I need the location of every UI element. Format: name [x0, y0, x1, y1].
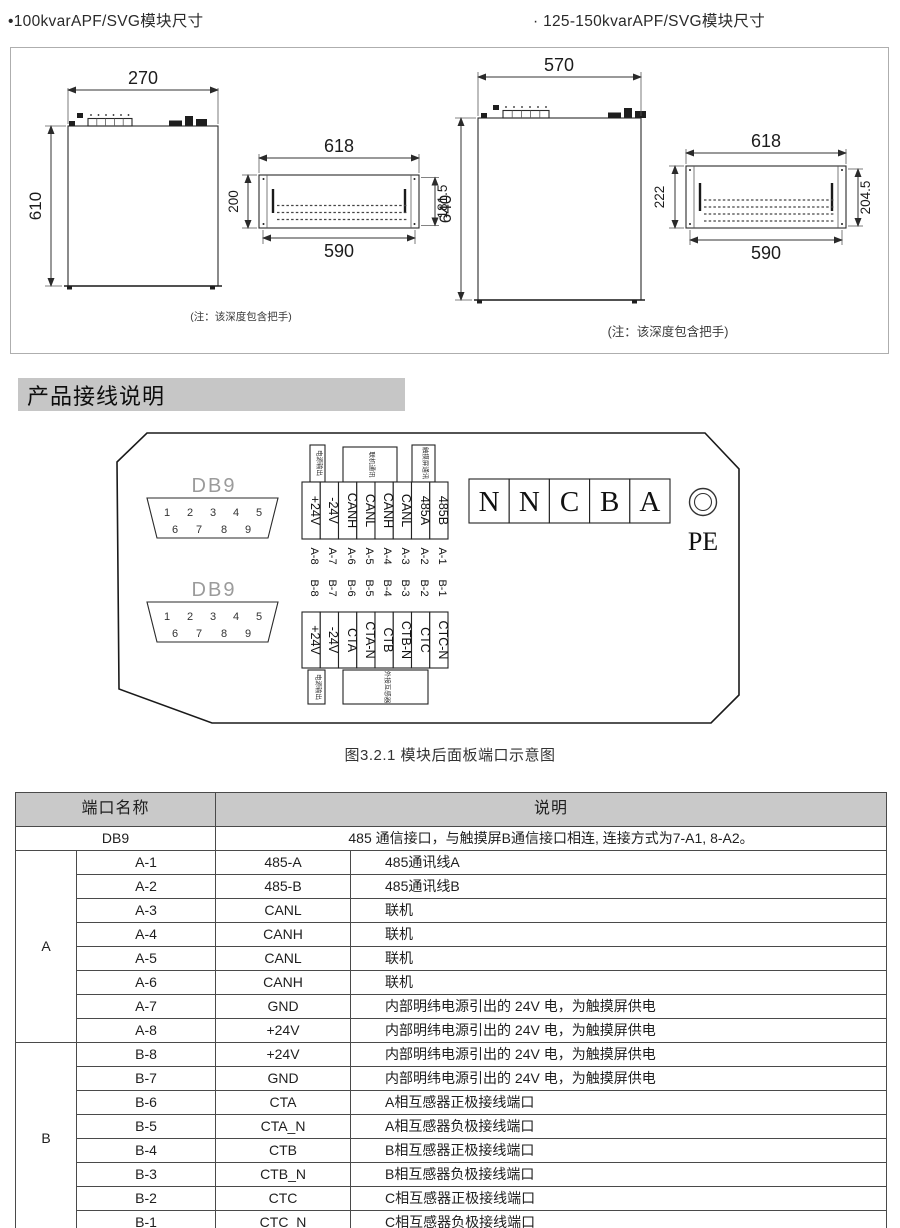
db9-pin: 7 [196, 524, 202, 536]
group-a-cell: A [16, 851, 77, 1043]
power-bus-terminals: N N C B A [469, 479, 670, 523]
pin-id: B-7 [326, 579, 338, 596]
signal-cell: 485-A [216, 851, 351, 875]
pin-cell: B-1 [77, 1211, 216, 1228]
terminal-label: +24V [308, 496, 322, 526]
desc-cell: 485通讯线A [351, 851, 887, 875]
signal-cell: CTC_N [216, 1211, 351, 1228]
pin-cell: B-8 [77, 1043, 216, 1067]
note-depth-handle-left: (注：该深度包含把手) [190, 310, 292, 323]
header-description: 说明 [216, 793, 887, 827]
pin-cell: A-2 [77, 875, 216, 899]
terminal-label: CTC [418, 627, 432, 653]
signal-cell: +24V [216, 1019, 351, 1043]
db9-pin: 9 [245, 524, 251, 536]
dim-125kvar-width: 570 [544, 55, 574, 75]
bus-terminal-letter: B [600, 486, 619, 518]
desc-cell: 联机 [351, 923, 887, 947]
db9-pin: 5 [256, 507, 262, 519]
pin-cell: B-7 [77, 1067, 216, 1091]
header-port-name: 端口名称 [16, 793, 216, 827]
bus-terminal-letter: C [560, 486, 579, 518]
pin-cell: A-5 [77, 947, 216, 971]
terminal-label: CTC-N [436, 621, 450, 660]
dim-100kvar-rear-bottom: 590 [324, 241, 354, 261]
dim-125kvar-rear-top: 618 [751, 131, 781, 151]
pin-cell: B-3 [77, 1163, 216, 1187]
pin-id: A-5 [363, 547, 375, 564]
signal-cell: CTA_N [216, 1115, 351, 1139]
db9-pin: 3 [210, 507, 216, 519]
manual-page: •100kvarAPF/SVG模块尺寸 · 125-150kvarAPF/SVG… [0, 0, 900, 1228]
drawing-front-100kvar: 270 610 [26, 68, 222, 290]
bus-terminal-letter: N [519, 486, 540, 518]
table-row: B B-8 +24V 内部明纬电源引出的 24V 电，为触摸屏供电 [16, 1043, 887, 1067]
signal-cell: CANL [216, 947, 351, 971]
signal-cell: CTC [216, 1187, 351, 1211]
terminal-label: CANH [345, 493, 359, 528]
pin-id: B-8 [308, 579, 320, 596]
function-label: 电源输出 [316, 450, 325, 476]
db9-pin: 2 [187, 507, 193, 519]
db9-pin: 8 [221, 524, 227, 536]
terminal-label: 485A [418, 496, 432, 526]
db9-pin: 1 [164, 611, 170, 623]
section-header-text: 产品接线说明 [18, 379, 165, 411]
db9-label: DB9 [192, 579, 237, 601]
terminal-label: CANL [363, 494, 377, 527]
drawing-rear-100kvar: 618 200 181.5 590 [226, 136, 450, 261]
table-row: B-6 CTA A相互感器正极接线端口 [16, 1091, 887, 1115]
signal-cell: CTB [216, 1139, 351, 1163]
terminal-label: CTA-N [363, 621, 377, 658]
pin-cell: A-4 [77, 923, 216, 947]
section-title-125-150kvar: · 125-150kvarAPF/SVG模块尺寸 [533, 9, 765, 31]
table-row: B-1 CTC_N C相互感器负极接线端口 [16, 1211, 887, 1228]
rear-panel-svg: DB9 1 2 3 4 5 6 7 8 9 电源输出 联机通讯 触摸屏通讯 [110, 428, 750, 738]
signal-cell: CTA [216, 1091, 351, 1115]
signal-cell: CANH [216, 923, 351, 947]
table-row: B-5 CTA_N A相互感器负极接线端口 [16, 1115, 887, 1139]
bus-terminal-letter: N [479, 486, 500, 518]
table-row: B-2 CTC C相互感器正极接线端口 [16, 1187, 887, 1211]
pin-cell: A-8 [77, 1019, 216, 1043]
table-row-db9: DB9 485 通信接口，与触摸屏B通信接口相连, 连接方式为7-A1, 8-A… [16, 827, 887, 851]
db9-pin: 9 [245, 628, 251, 640]
pin-id: A-1 [436, 547, 448, 564]
pin-id: B-6 [345, 579, 357, 596]
db9-pin: 1 [164, 507, 170, 519]
desc-cell: C相互感器正极接线端口 [351, 1187, 887, 1211]
desc-cell: 内部明纬电源引出的 24V 电，为触摸屏供电 [351, 1043, 887, 1067]
desc-cell: 内部明纬电源引出的 24V 电，为触摸屏供电 [351, 1019, 887, 1043]
db9-pin: 2 [187, 611, 193, 623]
desc-cell: 内部明纬电源引出的 24V 电，为触摸屏供电 [351, 995, 887, 1019]
db9-cell: DB9 [16, 827, 216, 851]
pin-cell: A-6 [77, 971, 216, 995]
desc-cell: 联机 [351, 947, 887, 971]
section-header-wiring: 产品接线说明 [18, 378, 405, 411]
table-row: A-6 CANH 联机 [16, 971, 887, 995]
db9-pin: 3 [210, 611, 216, 623]
drawing-rear-125-150kvar: 618 222 204.5 590 [652, 131, 873, 263]
signal-cell: GND [216, 995, 351, 1019]
terminal-label: -24V [326, 627, 340, 654]
pin-id: A-4 [381, 547, 393, 564]
table-row: A-7 GND 内部明纬电源引出的 24V 电，为触摸屏供电 [16, 995, 887, 1019]
table-row: A-3 CANL 联机 [16, 899, 887, 923]
desc-cell: C相互感器负极接线端口 [351, 1211, 887, 1228]
desc-cell: 联机 [351, 971, 887, 995]
pin-cell: A-7 [77, 995, 216, 1019]
dim-125kvar-rear-bottom: 590 [751, 243, 781, 263]
db9-desc-cell: 485 通信接口，与触摸屏B通信接口相连, 连接方式为7-A1, 8-A2。 [216, 827, 887, 851]
pin-id: B-2 [418, 579, 430, 596]
pin-id: A-8 [308, 547, 320, 564]
table-row: A-4 CANH 联机 [16, 923, 887, 947]
desc-cell: A相互感器负极接线端口 [351, 1115, 887, 1139]
table-row: B-3 CTB_N B相互感器负极接线端口 [16, 1163, 887, 1187]
signal-cell: 485-B [216, 875, 351, 899]
figure-caption: 图3.2.1 模块后面板端口示意图 [0, 744, 900, 765]
section-title-100kvar: •100kvarAPF/SVG模块尺寸 [8, 9, 203, 31]
terminal-label: CTB [381, 628, 395, 653]
pin-id: B-4 [381, 579, 393, 596]
dim-100kvar-width: 270 [128, 68, 158, 88]
signal-cell: CANL [216, 899, 351, 923]
terminal-label: CTB-N [399, 621, 413, 659]
drawing-front-125-150kvar: 570 640 [436, 55, 646, 304]
db9-pin: 8 [221, 628, 227, 640]
terminal-label: CANL [399, 494, 413, 527]
signal-cell: CANH [216, 971, 351, 995]
table-row: A-2 485-B 485通讯线B [16, 875, 887, 899]
terminal-label: -24V [326, 497, 340, 524]
db9-pin: 7 [196, 628, 202, 640]
pin-id: B-1 [436, 579, 448, 596]
dimension-drawings-svg: 270 610 618 [11, 48, 886, 351]
port-description-table: 端口名称 说明 DB9 485 通信接口，与触摸屏B通信接口相连, 连接方式为7… [15, 792, 887, 1228]
pin-id: A-7 [326, 547, 338, 564]
terminal-label: CANH [381, 493, 395, 528]
pin-id: B-5 [363, 579, 375, 596]
dim-100kvar-rear-left: 200 [226, 190, 241, 213]
pin-cell: B-4 [77, 1139, 216, 1163]
function-label: 联机通讯 [368, 452, 377, 479]
note-depth-handle-right: (注：该深度包含把手) [608, 324, 729, 339]
table-row: B-7 GND 内部明纬电源引出的 24V 电，为触摸屏供电 [16, 1067, 887, 1091]
desc-cell: B相互感器负极接线端口 [351, 1163, 887, 1187]
desc-cell: 联机 [351, 899, 887, 923]
terminal-label: 485B [436, 496, 450, 525]
table-row: A-5 CANL 联机 [16, 947, 887, 971]
table-row: B-4 CTB B相互感器正极接线端口 [16, 1139, 887, 1163]
table-header-row: 端口名称 说明 [16, 793, 887, 827]
db9-label: DB9 [192, 475, 237, 497]
dim-125kvar-rear-right: 204.5 [858, 181, 873, 215]
pin-cell: A-1 [77, 851, 216, 875]
group-b-cell: B [16, 1043, 77, 1228]
db9-pin: 4 [233, 611, 239, 623]
pin-id: A-3 [399, 547, 411, 564]
pin-cell: B-6 [77, 1091, 216, 1115]
rear-panel-diagram: DB9 1 2 3 4 5 6 7 8 9 电源输出 联机通讯 触摸屏通讯 [110, 428, 750, 738]
signal-cell: CTB_N [216, 1163, 351, 1187]
table-row: A-8 +24V 内部明纬电源引出的 24V 电，为触摸屏供电 [16, 1019, 887, 1043]
desc-cell: B相互感器正极接线端口 [351, 1139, 887, 1163]
dim-125kvar-rear-left: 222 [652, 186, 667, 209]
signal-cell: +24V [216, 1043, 351, 1067]
function-label: 外接互感器 [384, 671, 393, 704]
terminal-label: +24V [308, 625, 322, 655]
pin-id: A-6 [345, 547, 357, 564]
db9-pin: 6 [172, 628, 178, 640]
bus-terminal-letter: A [639, 486, 660, 518]
dimension-drawings-panel: 270 610 618 [10, 47, 889, 354]
pin-cell: B-5 [77, 1115, 216, 1139]
db9-pin: 5 [256, 611, 262, 623]
table-row: A A-1 485-A 485通讯线A [16, 851, 887, 875]
pin-id: A-2 [418, 547, 430, 564]
pe-label: PE [688, 527, 718, 556]
pin-cell: A-3 [77, 899, 216, 923]
terminal-label: CTA [345, 628, 359, 653]
signal-cell: GND [216, 1067, 351, 1091]
function-label: 电源输出 [315, 674, 324, 700]
desc-cell: 485通讯线B [351, 875, 887, 899]
dim-125kvar-height: 640 [436, 195, 455, 223]
desc-cell: A相互感器正极接线端口 [351, 1091, 887, 1115]
function-label: 触摸屏通讯 [422, 447, 431, 480]
pin-id: B-3 [399, 579, 411, 596]
dim-100kvar-rear-top: 618 [324, 136, 354, 156]
pin-cell: B-2 [77, 1187, 216, 1211]
db9-pin: 4 [233, 507, 239, 519]
db9-pin: 6 [172, 524, 178, 536]
desc-cell: 内部明纬电源引出的 24V 电，为触摸屏供电 [351, 1067, 887, 1091]
dim-100kvar-height: 610 [26, 192, 45, 220]
